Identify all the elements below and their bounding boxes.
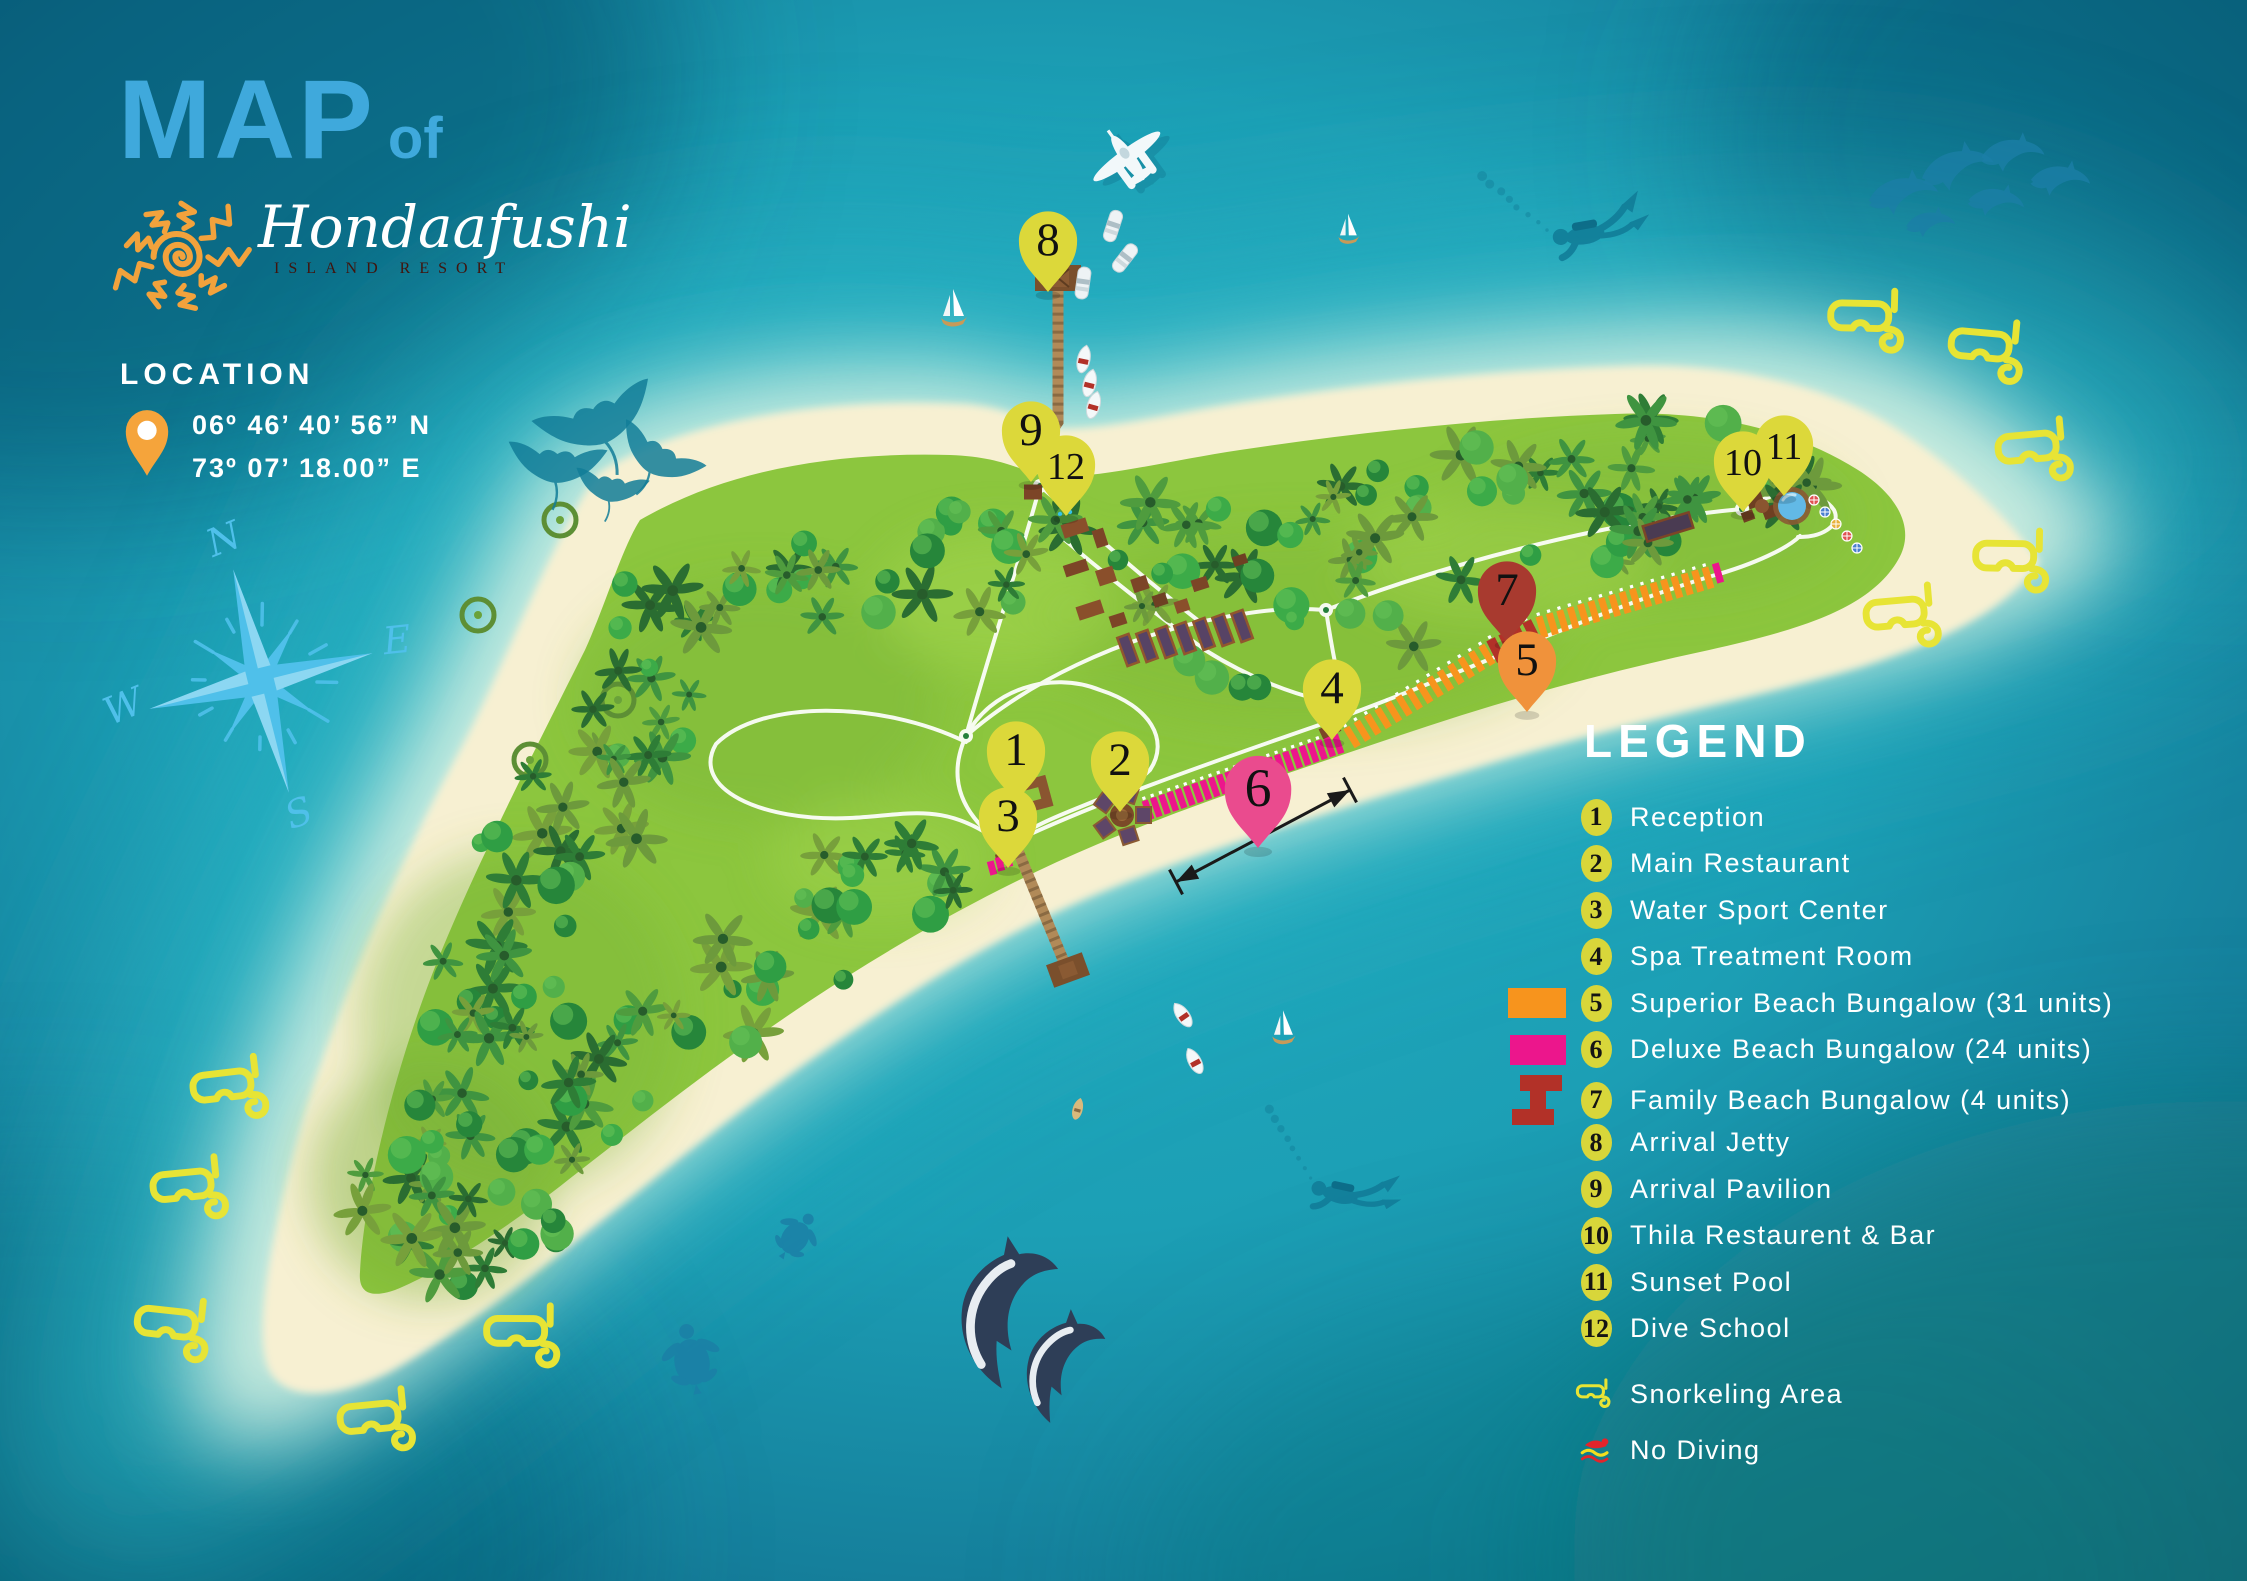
legend-item-label: Arrival Jetty bbox=[1618, 1127, 2247, 1158]
sun-swirl-icon bbox=[104, 182, 254, 332]
legend-badge-7: 7 bbox=[1581, 1082, 1612, 1119]
legend-item-4: 4Spa Treatment Room bbox=[1496, 934, 2247, 981]
legend-item-label: Family Beach Bungalow (4 units) bbox=[1618, 1085, 2247, 1116]
legend-extra-no-diving: No Diving bbox=[1496, 1422, 2247, 1478]
legend-badge-10: 10 bbox=[1581, 1217, 1612, 1254]
legend-badge-4: 4 bbox=[1581, 938, 1612, 975]
location-body: 06º 46’ 40’ 56” N 73º 07’ 18.00” E bbox=[120, 404, 431, 490]
swatch-empty bbox=[1496, 1120, 1574, 1167]
resort-map-poster: 891110127541263 MAP of Hondaafushi ISLAN… bbox=[0, 0, 2247, 1581]
legend-item-label: Thila Restaurent & Bar bbox=[1618, 1220, 2247, 1251]
legend-item-label: Water Sport Center bbox=[1618, 895, 2247, 926]
legend-badge-3: 3 bbox=[1581, 892, 1612, 929]
legend-item-12: 12Dive School bbox=[1496, 1306, 2247, 1353]
swatch-empty bbox=[1496, 794, 1574, 841]
svg-text:3: 3 bbox=[996, 790, 1020, 842]
legend-item-6: 6Deluxe Beach Bungalow (24 units) bbox=[1496, 1027, 2247, 1074]
legend-item-label: Sunset Pool bbox=[1618, 1267, 2247, 1298]
legend-item-2: 2Main Restaurant bbox=[1496, 841, 2247, 888]
legend-badge-11: 11 bbox=[1581, 1264, 1612, 1301]
legend-extras: Snorkeling AreaNo Diving bbox=[1496, 1366, 2247, 1478]
svg-text:9: 9 bbox=[1019, 404, 1043, 456]
svg-text:5: 5 bbox=[1515, 634, 1539, 686]
svg-text:E: E bbox=[380, 617, 413, 664]
swatch-deluxe bbox=[1496, 1027, 1574, 1074]
legend-badge-8: 8 bbox=[1581, 1124, 1612, 1161]
swatch-empty bbox=[1496, 934, 1574, 981]
swatch-empty bbox=[1496, 1366, 1574, 1422]
no-diving-icon bbox=[1574, 1424, 1618, 1476]
svg-text:12: 12 bbox=[1047, 446, 1085, 488]
legend-item-10: 10Thila Restaurent & Bar bbox=[1496, 1213, 2247, 1260]
legend-item-9: 9Arrival Pavilion bbox=[1496, 1166, 2247, 1213]
legend-item-label: Snorkeling Area bbox=[1618, 1379, 2247, 1410]
map-header: MAP of Hondaafushi ISLAND RESORT bbox=[118, 64, 632, 332]
svg-text:W: W bbox=[97, 677, 152, 734]
resort-subtitle: ISLAND RESORT bbox=[258, 260, 632, 278]
legend-item-label: Dive School bbox=[1618, 1313, 2247, 1344]
legend-badge-6: 6 bbox=[1581, 1031, 1612, 1068]
legend-badge-1: 1 bbox=[1581, 799, 1612, 836]
resort-logo: Hondaafushi ISLAND RESORT bbox=[118, 182, 632, 332]
swatch-empty bbox=[1496, 841, 1574, 888]
swatch-empty bbox=[1496, 887, 1574, 934]
snorkel-icon bbox=[1574, 1368, 1618, 1420]
legend-item-11: 11Sunset Pool bbox=[1496, 1259, 2247, 1306]
legend-item-1: 1Reception bbox=[1496, 794, 2247, 841]
svg-text:1: 1 bbox=[1004, 724, 1028, 776]
legend-item-label: Reception bbox=[1618, 802, 2247, 833]
resort-logo-text: Hondaafushi ISLAND RESORT bbox=[258, 182, 632, 278]
svg-text:4: 4 bbox=[1320, 662, 1344, 714]
location-heading: LOCATION bbox=[120, 358, 431, 392]
svg-text:S: S bbox=[279, 788, 319, 838]
svg-text:6: 6 bbox=[1245, 758, 1272, 818]
sunset-pool bbox=[1773, 487, 1811, 525]
swatch-empty bbox=[1496, 1259, 1574, 1306]
legend-title: LEGEND bbox=[1584, 714, 2247, 768]
swatch-superior bbox=[1496, 980, 1574, 1027]
svg-text:2: 2 bbox=[1108, 734, 1132, 786]
legend-panel: LEGEND 1Reception2Main Restaurant3Water … bbox=[1496, 714, 2247, 1478]
legend-badge-5: 5 bbox=[1581, 985, 1612, 1022]
compass-rose: NESW bbox=[96, 516, 426, 846]
legend-badge-2: 2 bbox=[1581, 845, 1612, 882]
legend-badge-9: 9 bbox=[1581, 1171, 1612, 1208]
page-title-suffix: of bbox=[388, 105, 443, 172]
location-block: LOCATION 06º 46’ 40’ 56” N 73º 07’ 18.00… bbox=[120, 358, 431, 490]
svg-text:7: 7 bbox=[1495, 564, 1519, 616]
swatch-empty bbox=[1496, 1422, 1574, 1478]
resort-name: Hondaafushi bbox=[258, 198, 632, 256]
legend-item-label: Main Restaurant bbox=[1618, 848, 2247, 879]
swatch-empty bbox=[1496, 1213, 1574, 1260]
legend-badge-12: 12 bbox=[1581, 1310, 1612, 1347]
swatch-empty bbox=[1496, 1166, 1574, 1213]
svg-text:8: 8 bbox=[1036, 214, 1060, 266]
legend-extra-snorkel: Snorkeling Area bbox=[1496, 1366, 2247, 1422]
location-pin-icon bbox=[120, 404, 174, 478]
location-coordinates: 06º 46’ 40’ 56” N 73º 07’ 18.00” E bbox=[192, 404, 431, 490]
legend-item-5: 5Superior Beach Bungalow (31 units) bbox=[1496, 980, 2247, 1027]
svg-text:10: 10 bbox=[1724, 442, 1762, 484]
swatch-empty bbox=[1496, 1306, 1574, 1353]
location-line2: 73º 07’ 18.00” E bbox=[192, 447, 431, 490]
title-row: MAP of bbox=[118, 64, 632, 176]
location-line1: 06º 46’ 40’ 56” N bbox=[192, 404, 431, 447]
legend-item-label: Spa Treatment Room bbox=[1618, 941, 2247, 972]
legend-item-label: Superior Beach Bungalow (31 units) bbox=[1618, 988, 2247, 1019]
svg-text:N: N bbox=[199, 516, 249, 566]
legend-item-label: No Diving bbox=[1618, 1435, 2247, 1466]
legend-item-3: 3Water Sport Center bbox=[1496, 887, 2247, 934]
legend-item-8: 8Arrival Jetty bbox=[1496, 1120, 2247, 1167]
legend-item-label: Deluxe Beach Bungalow (24 units) bbox=[1618, 1034, 2247, 1065]
legend-rows: 1Reception2Main Restaurant3Water Sport C… bbox=[1496, 794, 2247, 1352]
page-title: MAP bbox=[118, 64, 376, 176]
legend-item-7: 7Family Beach Bungalow (4 units) bbox=[1496, 1073, 2247, 1120]
legend-item-label: Arrival Pavilion bbox=[1618, 1174, 2247, 1205]
